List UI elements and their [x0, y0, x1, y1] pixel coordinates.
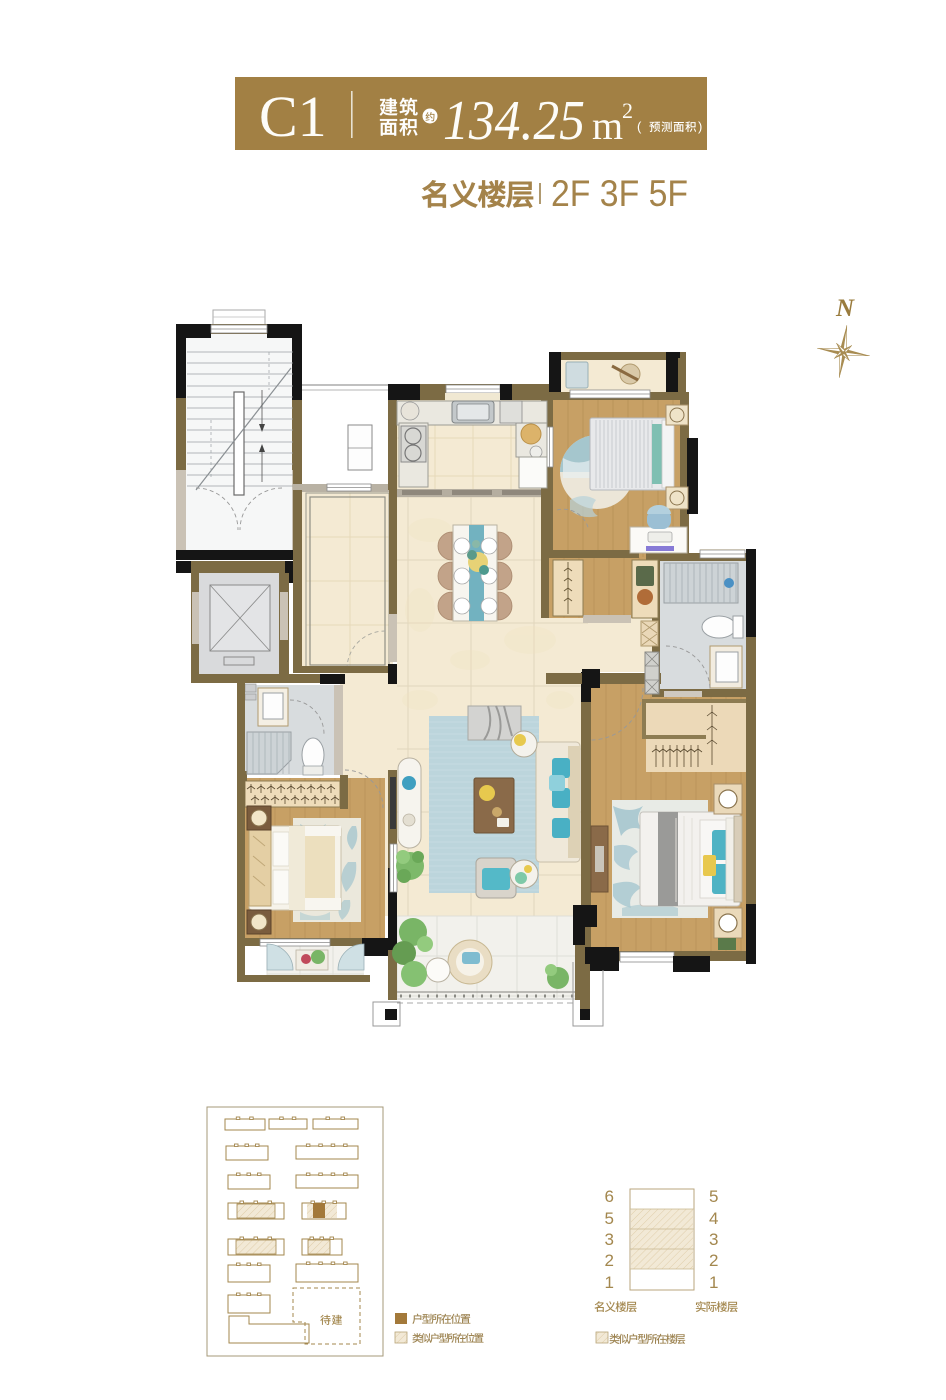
svg-text:2: 2	[709, 1251, 718, 1270]
svg-text:3: 3	[605, 1230, 614, 1249]
svg-text:(: (	[637, 119, 642, 134]
svg-text:): )	[698, 119, 702, 134]
svg-text:2: 2	[605, 1251, 614, 1270]
svg-text:5: 5	[709, 1187, 718, 1206]
svg-text:C1: C1	[259, 84, 327, 149]
svg-text:2F 3F 5F: 2F 3F 5F	[551, 173, 688, 214]
svg-text:1: 1	[605, 1273, 614, 1292]
svg-text:1: 1	[709, 1273, 718, 1292]
svg-text:4: 4	[709, 1209, 718, 1228]
svg-text:5: 5	[605, 1209, 614, 1228]
svg-text:2: 2	[622, 98, 633, 123]
svg-text:N: N	[835, 295, 855, 322]
svg-text:134.25: 134.25	[443, 90, 585, 152]
svg-text:m: m	[592, 103, 623, 148]
svg-text:3: 3	[709, 1230, 718, 1249]
svg-text:6: 6	[605, 1187, 614, 1206]
